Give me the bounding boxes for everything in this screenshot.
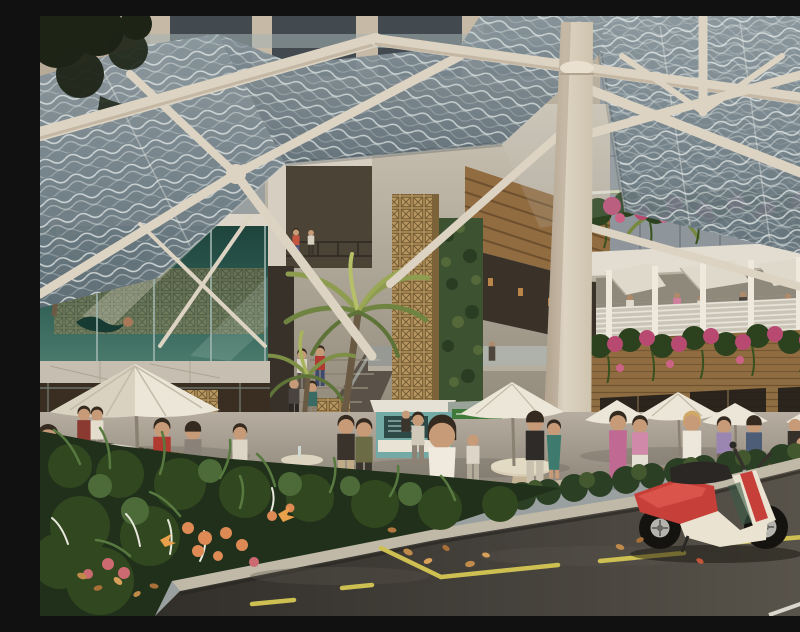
architectural-rendering: Architectural rendering: street view of … bbox=[40, 16, 800, 616]
gold-screen-tower bbox=[392, 194, 432, 412]
